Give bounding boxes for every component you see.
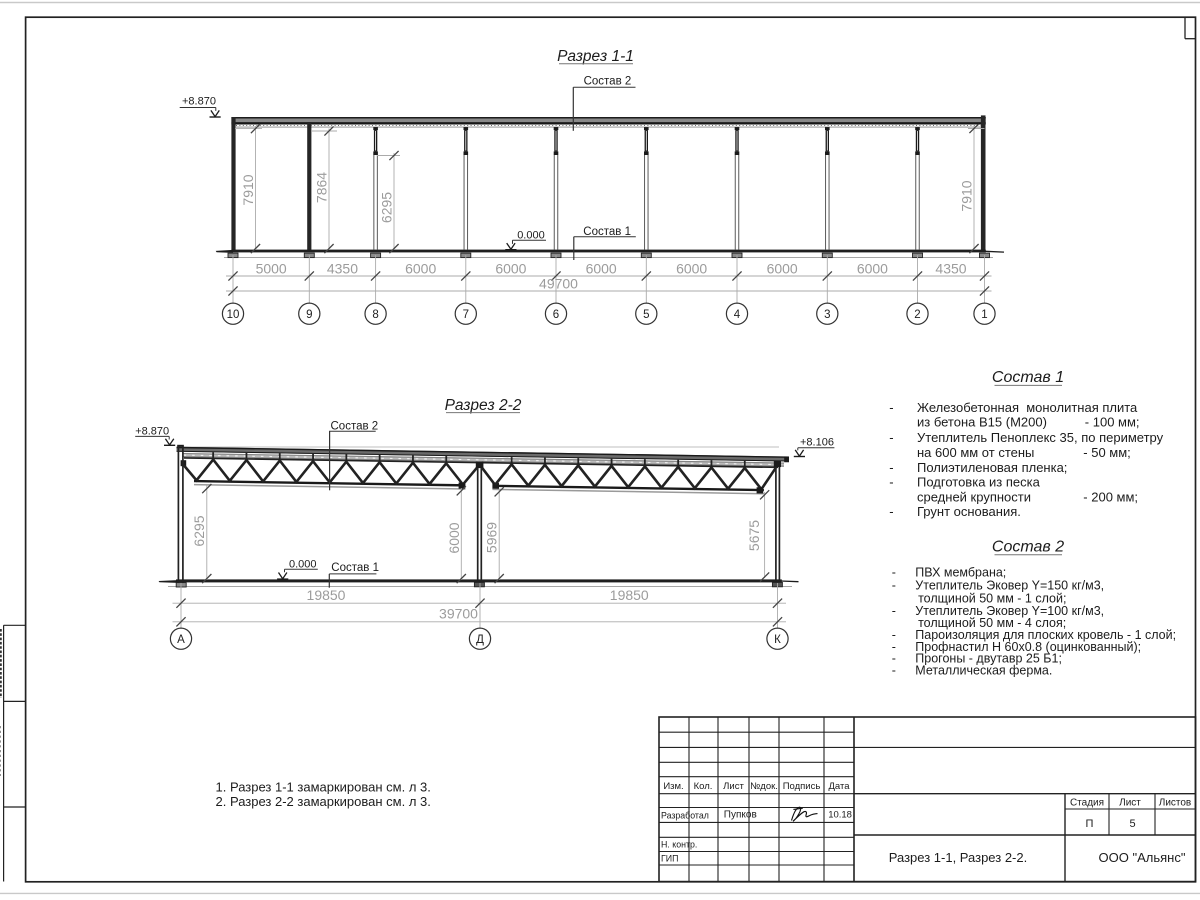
svg-text:П: П [1086, 818, 1094, 830]
svg-text:Разрез 1-1, Разрез 2-2.: Разрез 1-1, Разрез 2-2. [889, 850, 1027, 865]
svg-text:Лист: Лист [723, 781, 744, 792]
svg-text:-: - [892, 604, 896, 618]
svg-text:Железобетонная монолитная пли: Железобетонная монолитная плита [917, 400, 1138, 415]
svg-text:6000: 6000 [586, 260, 617, 276]
svg-text:6000: 6000 [767, 260, 798, 276]
svg-text:19850: 19850 [610, 587, 649, 603]
svg-text:6: 6 [553, 309, 559, 321]
svg-text:+8.870: +8.870 [182, 96, 216, 108]
svg-text:49700: 49700 [539, 275, 578, 291]
svg-text:на 600 мм от стены: на 600 мм от стены [917, 445, 1034, 460]
svg-text:-: - [892, 579, 896, 593]
svg-text:7910: 7910 [959, 180, 975, 211]
svg-text:Состав 2: Состав 2 [331, 420, 379, 432]
svg-text:6295: 6295 [379, 192, 395, 223]
svg-text:2. Разрез 2-2 замаркирован см.: 2. Разрез 2-2 замаркирован см. л 3. [216, 794, 431, 809]
svg-text:Подготовка из песка: Подготовка из песка [917, 475, 1041, 490]
svg-text:6000: 6000 [446, 522, 462, 553]
svg-text:средней крупности: средней крупности [917, 490, 1031, 505]
svg-text:Д: Д [476, 634, 484, 646]
svg-text:Состав 2: Состав 2 [584, 75, 632, 87]
svg-text:-: - [889, 475, 893, 490]
svg-text:ООО "Альянс": ООО "Альянс" [1099, 850, 1186, 865]
svg-text:К: К [774, 634, 781, 646]
svg-text:Состав 1: Состав 1 [331, 562, 379, 574]
svg-text:0.000: 0.000 [517, 229, 545, 241]
svg-text:Состав 2: Состав 2 [992, 538, 1064, 555]
svg-text:1. Разрез 1-1 замаркирован см.: 1. Разрез 1-1 замаркирован см. л 3. [216, 780, 431, 795]
svg-text:-: - [889, 400, 893, 415]
svg-text:6000: 6000 [495, 260, 526, 276]
svg-text:10: 10 [227, 309, 240, 321]
svg-text:Изм.: Изм. [663, 781, 683, 792]
svg-text:Полиэтиленовая пленка;: Полиэтиленовая пленка; [917, 460, 1067, 475]
svg-text:9: 9 [306, 309, 312, 321]
svg-text:Утеплитель Пеноплекс 35, по пе: Утеплитель Пеноплекс 35, по периметру [917, 430, 1164, 445]
svg-text:7910: 7910 [240, 174, 256, 205]
svg-text:Грунт основания.: Грунт основания. [917, 504, 1021, 519]
svg-text:6000: 6000 [676, 260, 707, 276]
svg-text:-: - [889, 430, 893, 445]
svg-text:Листов: Листов [1159, 797, 1192, 808]
svg-text:Дата: Дата [828, 781, 850, 792]
svg-text:Лист: Лист [1119, 797, 1141, 808]
svg-text:6295: 6295 [191, 515, 207, 546]
svg-text:7: 7 [463, 309, 469, 321]
svg-text:4350: 4350 [327, 260, 358, 276]
svg-text:6000: 6000 [405, 260, 436, 276]
svg-text:10.18: 10.18 [828, 810, 852, 821]
svg-text:Разработал: Разработал [661, 810, 709, 820]
svg-text:Состав 1: Состав 1 [992, 369, 1064, 386]
svg-text:Н. контр.: Н. контр. [661, 840, 697, 850]
svg-text:4: 4 [734, 309, 741, 321]
svg-text:Металлическая ферма.: Металлическая ферма. [915, 664, 1052, 678]
svg-text:-: - [892, 664, 896, 678]
svg-text:5000: 5000 [256, 260, 287, 276]
svg-text:5: 5 [1129, 818, 1135, 830]
svg-text:Кол.: Кол. [694, 781, 713, 792]
svg-text:Утеплитель Эковер Y=150 кг/м3,: Утеплитель Эковер Y=150 кг/м3, [915, 579, 1104, 593]
svg-text:Разрез 2-2: Разрез 2-2 [445, 397, 522, 414]
svg-text:5: 5 [643, 309, 649, 321]
svg-text:Стадия: Стадия [1070, 797, 1104, 808]
svg-text:0.000: 0.000 [289, 559, 317, 571]
svg-text:- 50 мм;: - 50 мм; [1083, 445, 1131, 460]
svg-text:7864: 7864 [314, 172, 330, 203]
svg-text:-: - [889, 504, 893, 519]
svg-text:- 100 мм;: - 100 мм; [1085, 415, 1140, 430]
svg-text:Подпись: Подпись [783, 781, 821, 792]
svg-text:из бетона В15 (М200): из бетона В15 (М200) [917, 415, 1047, 430]
svg-text:А: А [177, 634, 185, 646]
svg-text:5675: 5675 [746, 520, 762, 551]
svg-text:ПВХ мембрана;: ПВХ мембрана; [915, 565, 1006, 579]
svg-text:+8.106: +8.106 [800, 437, 834, 449]
svg-text:-: - [889, 460, 893, 475]
svg-text:2: 2 [914, 309, 920, 321]
svg-text:5969: 5969 [484, 522, 500, 553]
svg-text:4350: 4350 [935, 260, 966, 276]
svg-text:19850: 19850 [307, 587, 346, 603]
svg-text:+8.870: +8.870 [135, 426, 169, 438]
svg-text:3: 3 [824, 309, 830, 321]
svg-text:6000: 6000 [857, 260, 888, 276]
svg-text:Пупков: Пупков [724, 810, 757, 821]
svg-text:Разрез 1-1: Разрез 1-1 [557, 48, 634, 65]
svg-text:8: 8 [372, 309, 378, 321]
svg-text:№док.: №док. [750, 781, 778, 792]
svg-text:1: 1 [981, 309, 987, 321]
svg-text:39700: 39700 [439, 605, 478, 621]
svg-text:- 200 мм;: - 200 мм; [1083, 490, 1138, 505]
svg-text:ГИП: ГИП [661, 853, 678, 863]
svg-text:-: - [892, 565, 896, 579]
